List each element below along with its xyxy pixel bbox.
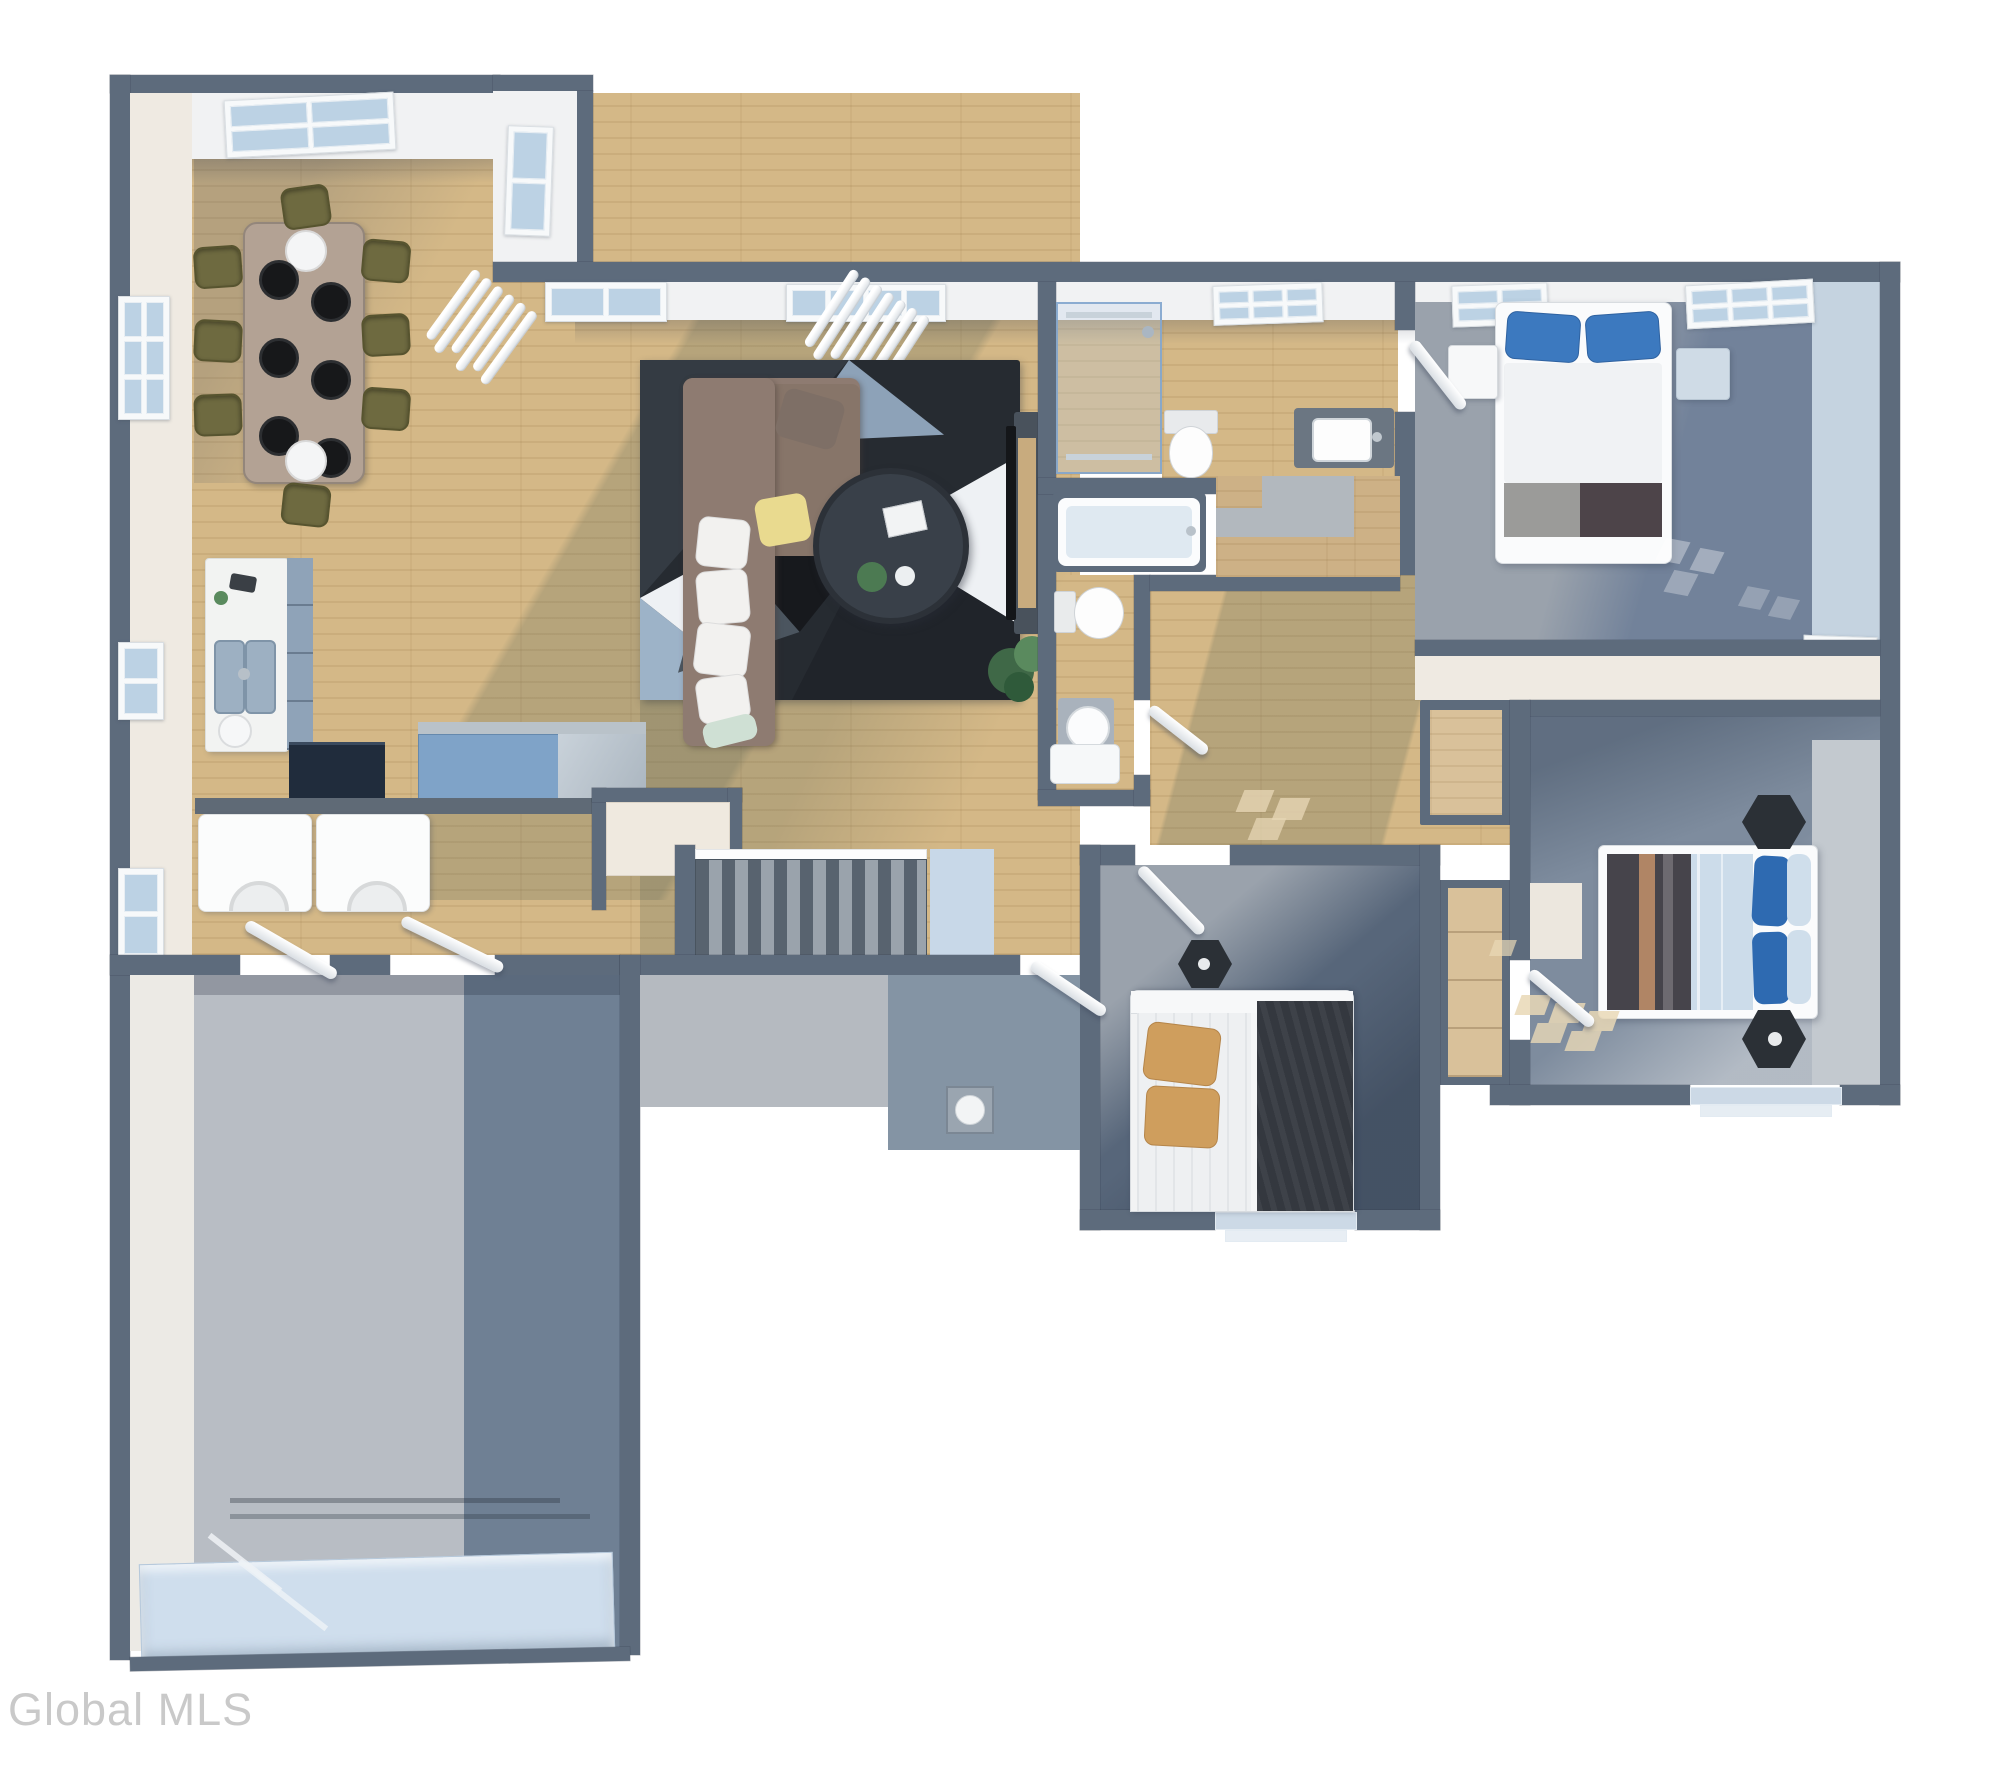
vanity-basin	[1312, 418, 1372, 462]
bedroom3-nightstand-knob	[1198, 958, 1210, 970]
window-pane	[124, 379, 142, 414]
bedroom3-south-wall-right	[1355, 1210, 1440, 1230]
coffee-table-books	[882, 500, 927, 538]
garage-floor-light	[194, 975, 464, 1651]
place-setting-plate	[285, 440, 327, 482]
bedroom2-pillow-pale	[1787, 854, 1811, 926]
bedroom3-west-wall	[1080, 845, 1100, 1230]
bedroom2-pillow-pale	[1787, 930, 1811, 1004]
powder-east-wall-upper	[1134, 575, 1150, 700]
window-pane	[124, 648, 158, 679]
window-pane	[1219, 307, 1249, 320]
window-pane	[312, 123, 390, 148]
counter-plant	[214, 591, 228, 605]
bedroom2-north-wall	[1530, 700, 1880, 716]
garage-floor-dark	[464, 975, 620, 1651]
closet-counter-east	[1354, 476, 1400, 577]
dining-chair	[193, 319, 243, 363]
dining-chair	[193, 244, 244, 289]
window-pane	[1692, 307, 1729, 323]
watermark-text: Global MLS	[8, 1684, 253, 1736]
window-pane	[1253, 289, 1283, 302]
bathtub-faucet	[1186, 526, 1196, 536]
master-west-wall-upper	[1395, 282, 1415, 330]
window-pane	[1287, 304, 1317, 317]
master-bed-pillow-blue	[1504, 310, 1581, 363]
window-pane	[124, 302, 142, 337]
window-pane	[124, 874, 158, 912]
bedroom2-south-window-sill	[1690, 1087, 1842, 1105]
west-wall-face	[130, 93, 192, 955]
window-pane	[124, 341, 142, 376]
master-bed-duvet	[1504, 363, 1662, 483]
garage-west-wall-face	[130, 975, 194, 1651]
bathroom-skylight-window	[1212, 282, 1323, 326]
window-pane	[1458, 290, 1498, 304]
shower-shelf-bar	[1066, 312, 1152, 318]
coffee-table	[813, 468, 969, 624]
bedroom3-window-outer-sill	[1225, 1230, 1347, 1242]
porch-column	[955, 1095, 985, 1125]
linen-closet-shelves	[1448, 888, 1502, 1077]
bedroom2-west-wall-upper	[1510, 700, 1530, 960]
bedroom3-pillow-tan	[1143, 1085, 1220, 1149]
porch-slab-light	[640, 975, 888, 1107]
window-pane	[231, 127, 309, 152]
window-pane	[1771, 285, 1808, 301]
hall-south-wall	[620, 955, 1020, 975]
sofa-pillow-white	[695, 515, 752, 570]
window-pane	[512, 131, 548, 179]
master-closet-shelves	[1430, 710, 1502, 815]
tv-console-shelf	[1018, 438, 1036, 608]
shower-head	[1142, 326, 1154, 338]
bedroom2-pillow-royal	[1752, 931, 1790, 1004]
window-pane	[124, 916, 158, 954]
bedroom3-bed	[1130, 990, 1354, 1212]
place-setting-plate	[311, 282, 351, 322]
window-pane	[1772, 303, 1809, 319]
bathtub	[1052, 492, 1206, 572]
garage-east-wall	[620, 955, 640, 1655]
bedroom2-blanket-stripe	[1663, 854, 1673, 1010]
bathroom-vanity	[1294, 408, 1394, 468]
sink-faucet	[238, 668, 250, 680]
laundry-west-window-2	[118, 868, 164, 960]
garage-north-wall-b	[330, 955, 390, 975]
sofa-pillow-white	[692, 621, 752, 679]
staircase	[695, 859, 927, 957]
tv-screen	[1006, 426, 1016, 620]
dining-north-wall	[110, 75, 500, 93]
shower-shelf-bar	[1066, 454, 1152, 460]
main-north-wall	[493, 262, 1900, 282]
window-pane	[1286, 288, 1316, 301]
shower-glass-enclosure	[1056, 302, 1162, 474]
dining-chair	[280, 482, 332, 529]
toilet-main-bath	[1164, 410, 1216, 478]
place-setting-plate	[259, 338, 299, 378]
window-pane	[146, 379, 164, 414]
bedroom3-north-wall-right	[1230, 845, 1440, 865]
garage-north-wall-c	[495, 955, 620, 975]
garage-door-panel	[139, 1552, 615, 1662]
porch-column-base	[946, 1086, 994, 1134]
nook-west-wall	[592, 788, 606, 910]
sofa-pillow-yellow	[753, 492, 813, 548]
bedroom2-pillow-royal	[1751, 855, 1791, 927]
window-pane	[1219, 291, 1249, 304]
master-bed-blanket-brown	[1580, 483, 1662, 537]
bedroom2-nightstand-knob	[1768, 1032, 1782, 1046]
powder-east-wall-lower	[1134, 775, 1150, 806]
window-pane	[1732, 305, 1769, 321]
closet-south-wall	[1150, 575, 1400, 591]
window-pane	[510, 182, 546, 230]
range-appliance	[289, 742, 385, 805]
kitchen-cabinet-front	[287, 558, 313, 750]
bedroom2-window-outer-sill	[1700, 1105, 1832, 1117]
place-setting-plate	[259, 260, 299, 300]
nook-north-wall	[592, 788, 742, 802]
dryer	[316, 814, 430, 912]
entry-mat	[930, 849, 994, 955]
master-bed-pillow-blue	[1584, 310, 1661, 363]
vanity-faucet	[1372, 432, 1382, 442]
window-pane	[1691, 289, 1728, 305]
laundry-west-window-1	[118, 642, 164, 720]
island-counter-top	[418, 722, 646, 734]
coffee-table-vase	[895, 566, 915, 586]
linen-closet	[1440, 880, 1510, 1085]
washer	[198, 814, 312, 912]
master-bed-blanket-gray	[1504, 483, 1580, 537]
window-pane	[792, 290, 826, 316]
bay-east-wall	[577, 91, 593, 280]
washer-door	[229, 881, 289, 912]
bedroom2-south-wall-right	[1840, 1085, 1900, 1105]
master-bed	[1495, 302, 1672, 564]
bedroom3-east-wall	[1420, 845, 1440, 1230]
window-pane	[230, 102, 308, 127]
bay-north-wall	[493, 75, 593, 91]
window-pane	[1458, 307, 1498, 321]
master-south-wall-face	[1415, 656, 1880, 700]
window-pane	[311, 98, 389, 123]
pedestal-sink	[1050, 696, 1120, 782]
window-pane	[1501, 289, 1541, 303]
floor-plan-render: Global MLS	[0, 0, 2000, 1777]
patio-door-glass	[545, 282, 667, 322]
master-nightstand-right	[1676, 348, 1730, 400]
master-closet	[1420, 700, 1512, 825]
window-pane	[1253, 305, 1283, 318]
bay-window	[504, 125, 554, 237]
toilet-powder-room	[1054, 583, 1122, 639]
coffee-table-plant	[857, 562, 887, 592]
window-pane	[124, 683, 158, 714]
kitchen-sink	[214, 640, 274, 712]
bedroom2-east-wall-face	[1812, 740, 1880, 1085]
tv-console	[1014, 412, 1040, 634]
stair-west-wall	[675, 845, 695, 955]
bedroom3-south-wall-left	[1080, 1210, 1215, 1230]
dining-chair	[360, 238, 411, 284]
bedroom2-bed	[1598, 845, 1818, 1019]
dining-skylight-window	[224, 92, 397, 159]
bedroom2-blanket-stripe-tan	[1639, 854, 1655, 1010]
window-pane	[146, 341, 164, 376]
sofa-pillow-white	[695, 568, 752, 626]
dining-chair	[361, 313, 411, 357]
window-pane	[146, 302, 164, 337]
dining-chair	[361, 386, 412, 431]
dining-chair	[193, 393, 242, 437]
counter-plate	[218, 714, 252, 748]
window-pane	[551, 288, 604, 316]
dryer-door	[347, 881, 407, 912]
garage-north-wall-a	[110, 955, 240, 975]
bedroom3-pillow-tan	[1142, 1021, 1223, 1088]
garage-track-line	[230, 1498, 560, 1503]
closet-counter-return	[1216, 476, 1262, 508]
counter-item-dark	[229, 573, 257, 593]
dining-west-window	[118, 296, 170, 420]
dining-table	[243, 222, 365, 484]
window-pane	[608, 288, 661, 316]
bedroom3-blanket	[1257, 1001, 1353, 1211]
kitchen-island	[418, 734, 560, 808]
place-setting-plate	[311, 360, 351, 400]
east-exterior-wall	[1880, 262, 1900, 1105]
bathtub-water	[1066, 506, 1192, 558]
bedroom3-window-sill	[1215, 1212, 1357, 1230]
bedroom2-south-wall-left	[1490, 1085, 1690, 1105]
laundry-counter-bar	[195, 798, 645, 814]
dining-chair	[279, 183, 332, 231]
window-pane	[1731, 287, 1768, 303]
master-south-wall	[1415, 640, 1880, 656]
bedroom2-wall-face-inner	[1530, 883, 1582, 959]
master-north-window-2	[1685, 279, 1815, 330]
garage-track-line	[230, 1514, 590, 1519]
